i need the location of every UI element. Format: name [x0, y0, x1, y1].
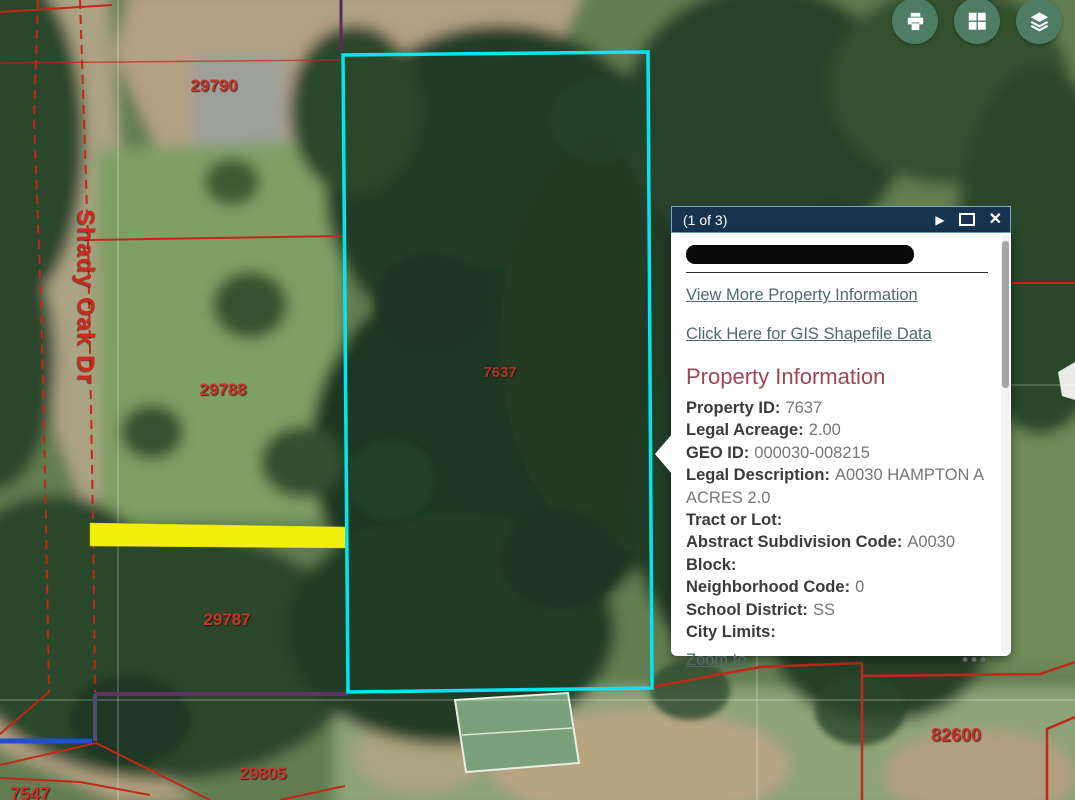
- parcel-label-82600: 82600: [931, 725, 981, 745]
- popup-titlebar[interactable]: (1 of 3) ▶ ✕: [671, 206, 1011, 233]
- field-tract-or-lot: Tract or Lot:: [686, 509, 989, 531]
- layers-button[interactable]: [1016, 0, 1062, 44]
- gis-shapefile-link[interactable]: Click Here for GIS Shapefile Data: [686, 325, 989, 344]
- next-feature-button[interactable]: ▶: [935, 214, 944, 226]
- more-options-button[interactable]: •••: [962, 650, 989, 670]
- field-block: Block:: [686, 554, 989, 576]
- field-abstract-subdivision-code: Abstract Subdivision Code:A0030: [686, 531, 989, 553]
- property-information-heading: Property Information: [686, 364, 989, 390]
- parcel-label-7547: 7547: [10, 784, 50, 800]
- field-legal-acreage: Legal Acreage:2.00: [686, 419, 989, 441]
- field-geo-id: GEO ID:000030-008215: [686, 442, 989, 464]
- field-school-district: School District:SS: [686, 599, 989, 621]
- parcel-label-29805: 29805: [239, 764, 286, 783]
- printer-icon: [904, 10, 927, 33]
- divider: [686, 272, 988, 273]
- popup-scrollbar-track[interactable]: [1001, 235, 1010, 653]
- highlighted-road-segment: [90, 523, 346, 548]
- redacted-owner-info: [686, 245, 914, 264]
- parcel-label-29787: 29787: [203, 610, 250, 629]
- basemap-gallery-button[interactable]: [954, 0, 1000, 44]
- parcel-label-7637: 7637: [483, 364, 516, 381]
- popup-title: (1 of 3): [683, 212, 921, 228]
- popup-body: View More Property Information Click Her…: [671, 233, 1011, 656]
- field-city-limits: City Limits:: [686, 621, 989, 643]
- print-button[interactable]: [892, 0, 938, 44]
- field-property-id: Property ID:7637: [686, 397, 989, 419]
- gis-map-viewer: 29790 29788 29787 29805 82600 7547 7637 …: [0, 0, 1075, 800]
- close-button[interactable]: ✕: [989, 212, 1002, 228]
- field-legal-description: Legal Description:A0030 HAMPTON A ACRES …: [686, 464, 989, 509]
- field-neighborhood-code: Neighborhood Code:0: [686, 576, 989, 598]
- popup-pointer: [655, 434, 672, 474]
- popup-scrollbar-thumb[interactable]: [1002, 241, 1009, 388]
- maximize-button[interactable]: [959, 213, 975, 226]
- parcel-label-29788: 29788: [199, 380, 246, 399]
- parcel-label-29790: 29790: [190, 76, 237, 95]
- feature-popup: (1 of 3) ▶ ✕ View More Property Informat…: [671, 206, 1011, 656]
- maximize-icon: [959, 213, 975, 226]
- layers-icon: [1028, 10, 1051, 33]
- grid-icon: [966, 10, 988, 32]
- zoom-to-link[interactable]: Zoom to: [686, 651, 747, 670]
- view-more-property-link[interactable]: View More Property Information: [686, 286, 989, 305]
- street-label-shady-oak-dr: Shady Oak Dr: [72, 209, 99, 384]
